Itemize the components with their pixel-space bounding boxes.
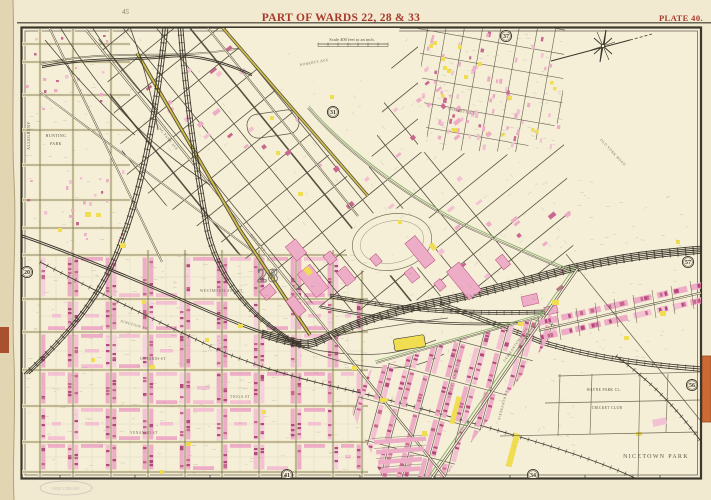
svg-text:TIOGA ST: TIOGA ST bbox=[230, 395, 250, 399]
svg-text:ONTARIO ST: ONTARIO ST bbox=[140, 357, 166, 361]
svg-text:57: 57 bbox=[685, 260, 691, 266]
svg-text:28: 28 bbox=[257, 265, 279, 287]
svg-text:37: 37 bbox=[503, 34, 509, 40]
svg-text:PARK: PARK bbox=[50, 142, 62, 146]
svg-text:VENANGO ST: VENANGO ST bbox=[130, 431, 158, 435]
svg-text:FREE LIBRARY: FREE LIBRARY bbox=[52, 486, 80, 491]
svg-text:NICETOWN PARK: NICETOWN PARK bbox=[623, 454, 689, 460]
svg-text:20: 20 bbox=[24, 270, 30, 276]
svg-text:56: 56 bbox=[689, 383, 695, 389]
svg-text:45: 45 bbox=[122, 8, 130, 16]
svg-text:HUNTING: HUNTING bbox=[46, 134, 67, 138]
svg-text:PART OF WARDS 22, 28 & 33: PART OF WARDS 22, 28 & 33 bbox=[262, 12, 420, 24]
svg-text:CRICKET CLUB: CRICKET CLUB bbox=[592, 406, 623, 410]
svg-text:31: 31 bbox=[330, 110, 336, 116]
svg-text:Scale 400 feet to an inch.: Scale 400 feet to an inch. bbox=[329, 37, 374, 42]
svg-text:PLATE 40.: PLATE 40. bbox=[659, 13, 703, 23]
svg-text:WAYNE PARK CL.: WAYNE PARK CL. bbox=[587, 388, 622, 392]
svg-text:ALLEGHENY: ALLEGHENY bbox=[26, 121, 31, 150]
svg-text:WESTMORELAND ST: WESTMORELAND ST bbox=[200, 289, 243, 293]
